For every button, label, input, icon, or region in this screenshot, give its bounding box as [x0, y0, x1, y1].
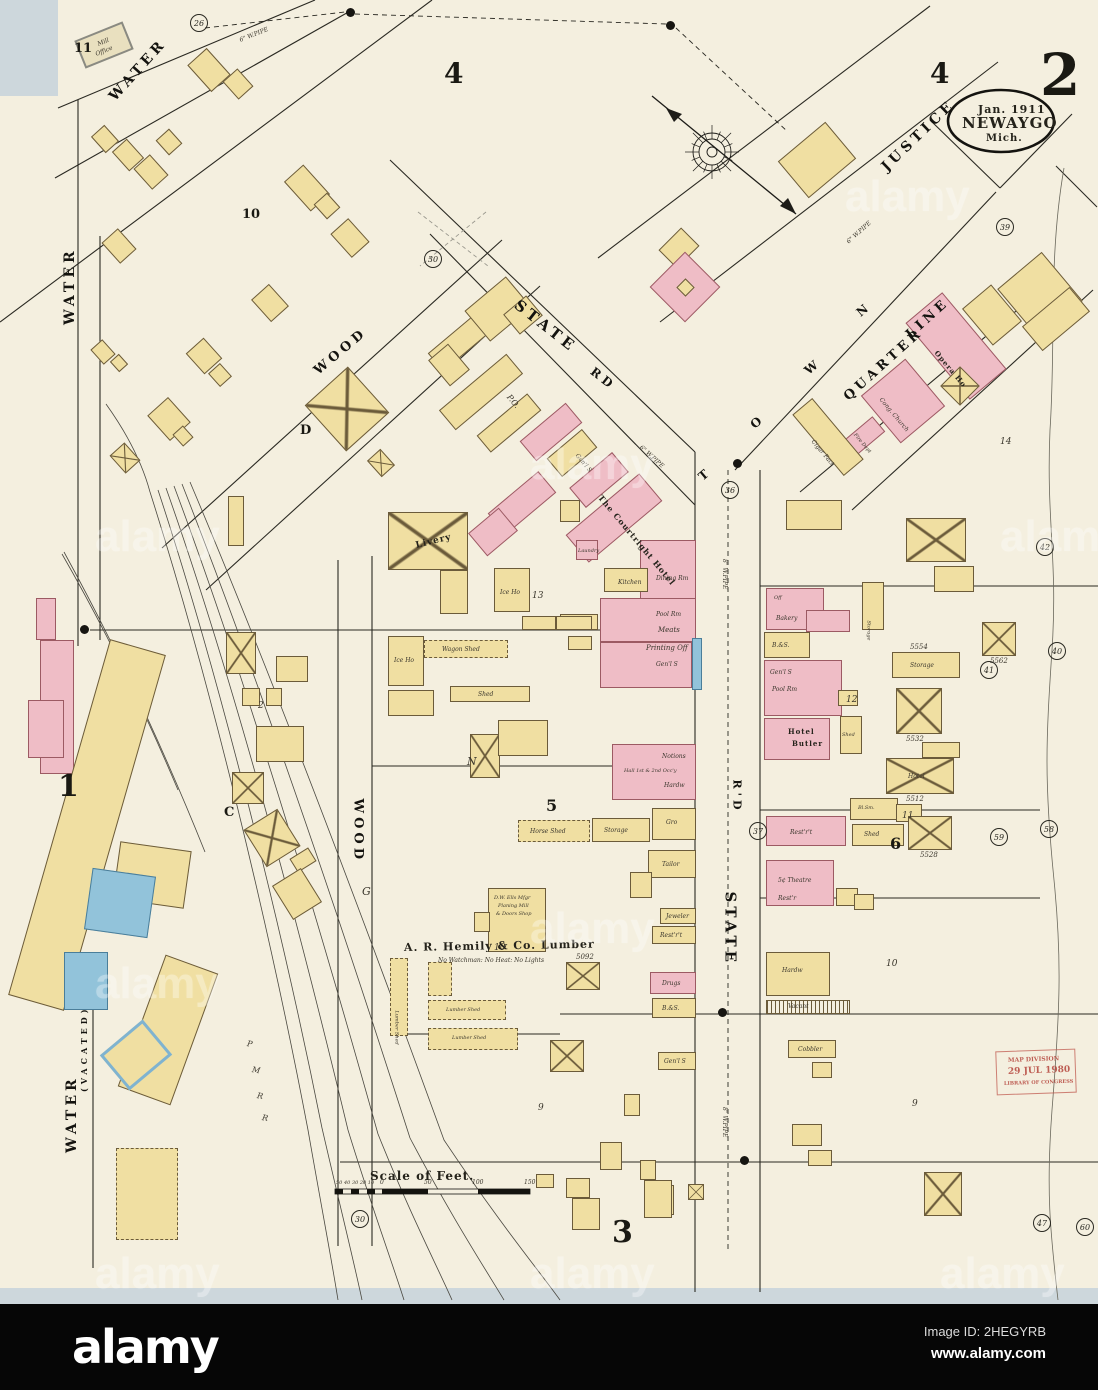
- survey-circle-number: 40: [1048, 642, 1066, 660]
- building: [36, 598, 56, 640]
- street-label: (VACATED): [80, 1006, 88, 1093]
- building-label: Hotel: [788, 728, 815, 735]
- compass-spoke: [724, 144, 732, 147]
- block-number: 3: [612, 1218, 633, 1248]
- sanborn-map-sheet: WATERWATERWATER(VACATED)WOODWOODSTATERDS…: [0, 0, 1098, 1390]
- block-number: 11: [74, 42, 92, 55]
- building-label: Cobbler: [798, 1047, 822, 1053]
- survey-circle-number: 59: [990, 828, 1008, 846]
- street-label: WATER: [63, 247, 77, 325]
- building-label: 12: [846, 696, 857, 705]
- building-label: No Watchman: No Heat: No Lights: [438, 958, 544, 964]
- building: [440, 570, 468, 614]
- building: [536, 1174, 554, 1188]
- building-label: Hall 1st & 2nd Occ'y: [624, 769, 677, 774]
- building: [640, 1160, 656, 1180]
- building-label: Ice Ho: [394, 658, 414, 664]
- survey-circle-number: 41: [980, 661, 998, 679]
- building: [566, 962, 600, 990]
- watermark-text: alamy: [940, 1252, 1065, 1296]
- building: [388, 690, 434, 716]
- street-line: [1056, 166, 1097, 207]
- scale-bar-segment: [351, 1189, 359, 1194]
- building-label: Pool Rm: [772, 687, 797, 693]
- scale-bar-segment: [367, 1189, 375, 1194]
- building-label: Jeweler: [666, 914, 689, 920]
- block-number: C: [224, 806, 234, 819]
- street-line: [390, 160, 695, 452]
- building-label: 8" W.PIPE: [721, 559, 727, 589]
- building-label: Kitchen: [618, 580, 641, 586]
- hydrant-dot: [80, 625, 89, 634]
- scale-bar-segment: [478, 1189, 530, 1194]
- hydrant-dot: [733, 459, 742, 468]
- building-label: 10: [886, 960, 897, 969]
- watermark-text: alamy: [95, 962, 220, 1006]
- building: [854, 894, 874, 910]
- building-label: Gen'l S: [664, 1059, 686, 1065]
- building: [572, 1198, 600, 1230]
- building-label: Rest'r't: [790, 830, 812, 836]
- survey-circle-number: 37: [749, 822, 767, 840]
- building-label: Pool Rm: [656, 612, 681, 618]
- compass-spoke: [692, 144, 700, 147]
- building: [792, 1124, 822, 1146]
- building: [766, 952, 830, 996]
- date-stamp-box: [995, 1049, 1076, 1096]
- building: [228, 496, 244, 546]
- building-label: B.&S.: [662, 1006, 679, 1012]
- building: [924, 1172, 962, 1216]
- building-label: Drugs: [662, 981, 680, 987]
- building: [934, 566, 974, 592]
- hydrant-dot: [346, 8, 355, 17]
- watermark-text: alamy: [530, 907, 655, 951]
- railroad-track: [158, 490, 362, 1300]
- building-label: 2: [258, 702, 264, 711]
- building: [522, 616, 556, 630]
- survey-circle-number: 60: [1076, 1218, 1094, 1236]
- building-label: Hardw: [782, 968, 803, 974]
- block-number: 10: [242, 208, 260, 221]
- compass-spoke: [704, 164, 707, 172]
- building-label: Lumber Shed: [394, 1011, 399, 1045]
- building-label: 100: [472, 1180, 483, 1186]
- block-number: 4: [930, 60, 949, 88]
- building-label: Lumber Shed: [446, 1008, 480, 1013]
- building-label: Gen'l S: [656, 662, 678, 668]
- building: [806, 610, 850, 632]
- building-label: Hotel: [908, 774, 925, 780]
- building: [692, 638, 702, 690]
- building: [922, 742, 960, 758]
- building: [600, 598, 696, 642]
- building: [116, 1148, 178, 1240]
- building: [498, 720, 548, 756]
- building: [266, 688, 282, 706]
- sheet-number: 2: [1040, 46, 1080, 104]
- block-number: 4: [444, 60, 463, 88]
- compass-spoke: [717, 132, 720, 140]
- building-label: 5512: [906, 796, 924, 803]
- street-label: WOOD: [352, 799, 365, 864]
- street-label: WATER: [65, 1075, 79, 1153]
- building-label: Gro: [666, 820, 677, 826]
- survey-circle-number: 39: [996, 218, 1014, 236]
- building-label: 13: [532, 592, 543, 601]
- building-label: Vacant: [788, 1004, 809, 1010]
- compass-rose: [707, 147, 717, 157]
- building-label: 8" W.PIPE: [721, 1107, 727, 1137]
- block-number: D: [300, 424, 311, 437]
- building-label: Bl.Sm.: [858, 806, 875, 811]
- building-label: Lumber Shed: [452, 1036, 486, 1041]
- building-label: Hardw: [664, 783, 685, 789]
- building: [982, 622, 1016, 656]
- building: [624, 1094, 640, 1116]
- building-label: Printing Off: [646, 645, 688, 652]
- building-label: 5528: [920, 852, 938, 859]
- building-label: Notions: [662, 754, 686, 760]
- building: [688, 1184, 704, 1200]
- building: [906, 518, 966, 562]
- building-label: Horse Shed: [530, 829, 566, 835]
- building: [276, 656, 308, 682]
- building: [226, 632, 256, 674]
- survey-circle-number: 47: [1033, 1214, 1051, 1232]
- building-label: Storage: [910, 663, 934, 669]
- building-label: Butler: [792, 740, 823, 747]
- building: [256, 726, 304, 762]
- building-label: Laundry: [578, 549, 599, 554]
- block-number: 1: [58, 772, 79, 802]
- footer-bar: alamy Image ID: 2HEGYRB www.alamy.com: [0, 1304, 1098, 1390]
- building-label: Storage: [866, 621, 871, 641]
- building-label: G: [362, 886, 371, 897]
- compass-spoke: [692, 157, 700, 160]
- street-label: STATE: [723, 892, 738, 967]
- block-number: 6: [890, 836, 901, 852]
- building-label: Ice Ho: [500, 590, 520, 596]
- building-label: Shed: [842, 733, 855, 738]
- hydrant-dot: [740, 1156, 749, 1165]
- building: [812, 1062, 832, 1078]
- building-label: Bakery: [776, 616, 797, 622]
- watermark-text: alamy: [95, 1252, 220, 1296]
- building-label: 9: [912, 1100, 918, 1109]
- building: [474, 912, 490, 932]
- building-label: Scale of Feet.: [370, 1170, 474, 1182]
- survey-circle-number: 58: [1040, 820, 1058, 838]
- watermark-text: alamy: [95, 515, 220, 559]
- building-label: M: [251, 1066, 260, 1075]
- building-label: 9: [538, 1104, 544, 1113]
- building-label: Off: [774, 596, 782, 601]
- building: [566, 1178, 590, 1198]
- building: [644, 1180, 672, 1218]
- building-label: Shed: [864, 832, 879, 838]
- survey-circle-number: 26: [190, 14, 208, 32]
- compass-spoke: [693, 161, 703, 171]
- building: [560, 500, 580, 522]
- building-label: 5554: [910, 644, 928, 651]
- building-label: 50: [424, 1180, 432, 1186]
- building: [908, 816, 952, 850]
- scale-bar-segment: [382, 1189, 428, 1194]
- image-id-text: Image ID: 2HEGYRB: [924, 1324, 1046, 1339]
- building: [428, 962, 452, 996]
- compass-spoke: [721, 161, 731, 171]
- building-label: Shed: [478, 692, 493, 698]
- building-label: Planing Mill: [498, 904, 529, 909]
- building-label: 150: [524, 1180, 535, 1186]
- title-oval-state: Mich.: [986, 134, 1023, 144]
- building-label: Meats: [658, 627, 680, 634]
- building-label: 5¢ Theatre: [778, 878, 811, 884]
- block-number: 5: [546, 798, 557, 814]
- building-label: Dining Rm: [656, 576, 688, 582]
- alamy-url-text: www.alamy.com: [924, 1345, 1046, 1362]
- building: [896, 688, 942, 734]
- street-line: [676, 28, 788, 132]
- building: [600, 1142, 622, 1170]
- scale-bar-segment: [335, 1189, 343, 1194]
- north-arrow-fletch: [666, 108, 682, 122]
- building: [84, 868, 156, 938]
- watermark-text: alamy: [1000, 515, 1098, 559]
- survey-circle-number: 30: [351, 1210, 369, 1228]
- building: [232, 772, 264, 804]
- building: [786, 500, 842, 530]
- building-label: D.W. Ells Mfgr: [494, 896, 530, 901]
- street-label: R'D: [732, 780, 743, 814]
- building-label: Rest'r't: [660, 933, 682, 939]
- building: [28, 700, 64, 758]
- building-label: 0: [380, 1180, 384, 1186]
- survey-circle-number: 36: [721, 481, 739, 499]
- building-label: Gen'l S: [770, 670, 792, 676]
- building-label: 5092: [576, 954, 594, 961]
- watermark-text: alamy: [530, 1252, 655, 1296]
- north-arrow-head: [780, 198, 796, 214]
- compass-spoke: [721, 133, 731, 143]
- building-label: Tailor: [662, 862, 679, 868]
- watermark-text: alamy: [530, 443, 655, 487]
- building-label: 5532: [906, 736, 924, 743]
- watermark-text: alamy: [845, 175, 970, 219]
- alamy-logo: alamy: [72, 1320, 218, 1374]
- building: [630, 872, 652, 898]
- building: [550, 1040, 584, 1072]
- building-label: B.&S.: [772, 643, 789, 649]
- building: [808, 1150, 832, 1166]
- building-label: Wagon Shed: [442, 647, 480, 653]
- building-label: 50 40 30 20 10: [336, 1181, 374, 1186]
- title-oval-city: NEWAYGO: [962, 116, 1058, 131]
- hydrant-dot: [666, 21, 675, 30]
- building: [568, 636, 592, 650]
- building-label: 14: [1000, 438, 1011, 447]
- building: [556, 616, 592, 630]
- survey-circle-number: 30: [424, 250, 442, 268]
- hydrant-dot: [718, 1008, 727, 1017]
- building-label: & Doors Shop: [496, 912, 531, 917]
- building-label: Rest'r: [778, 896, 796, 902]
- building-label: N: [467, 756, 477, 767]
- building-label: 11: [902, 812, 913, 821]
- building-label: Storage: [604, 828, 628, 834]
